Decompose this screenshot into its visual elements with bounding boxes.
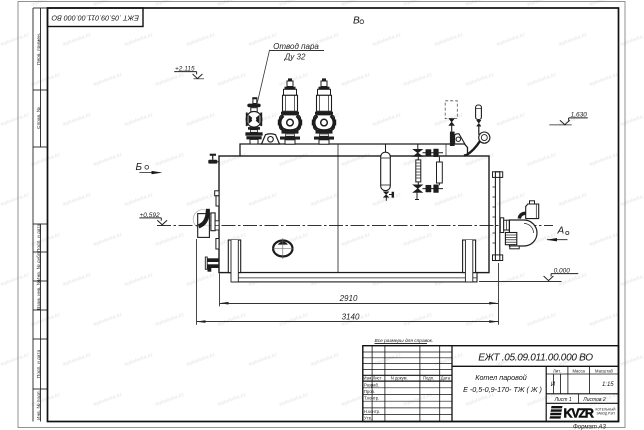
- svg-text:Инв. № дубл.: Инв. № дубл.: [36, 251, 42, 281]
- svg-text:1,630: 1,630: [571, 111, 588, 118]
- svg-text:Утв.: Утв.: [364, 416, 372, 421]
- svg-text:Т.контр.: Т.контр.: [364, 396, 379, 401]
- svg-text:Масса: Масса: [573, 368, 586, 373]
- svg-text:Масштаб: Масштаб: [595, 368, 614, 373]
- svg-text:Формат А3: Формат А3: [573, 424, 606, 430]
- svg-text:Инв. № подл.: Инв. № подл.: [36, 390, 42, 420]
- svg-text:Подп. и дата: Подп. и дата: [36, 350, 42, 379]
- svg-text:И: И: [551, 382, 556, 388]
- svg-text:ЕЖТ .05.09.011.00.000 ВО: ЕЖТ .05.09.011.00.000 ВО: [51, 13, 139, 22]
- svg-text:+2,115: +2,115: [175, 66, 195, 73]
- svg-text:А: А: [557, 226, 565, 237]
- svg-text:ЗАВОД РЭП: ЗАВОД РЭП: [597, 412, 616, 416]
- svg-text:Взам. инв. №: Взам. инв. №: [36, 280, 42, 310]
- svg-text:Пров.: Пров.: [364, 389, 375, 394]
- svg-text:Изм.Лист: Изм.Лист: [364, 376, 382, 381]
- svg-text:Котел паровой: Котел паровой: [475, 373, 527, 382]
- svg-text:3140: 3140: [342, 313, 360, 322]
- svg-text:Лит.: Лит.: [553, 368, 561, 373]
- svg-text:1:15: 1:15: [602, 382, 614, 388]
- svg-text:KVZR: KVZR: [564, 406, 594, 420]
- svg-text:Н.контр.: Н.контр.: [364, 409, 380, 414]
- svg-text:ЕЖТ .05.09.011.00.000 ВО: ЕЖТ .05.09.011.00.000 ВО: [478, 353, 593, 364]
- svg-text:N докум.: N докум.: [391, 376, 408, 381]
- svg-text:Дата: Дата: [441, 376, 451, 381]
- svg-text:Листов 2: Листов 2: [582, 397, 606, 403]
- svg-text:Отвод пара: Отвод пара: [273, 42, 319, 51]
- svg-text:В: В: [353, 16, 360, 27]
- svg-text:Б: Б: [136, 162, 143, 173]
- svg-text:Подп. и дата: Подп. и дата: [36, 224, 42, 253]
- svg-text:Подп.: Подп.: [423, 376, 434, 381]
- svg-text:Лист 1: Лист 1: [554, 397, 572, 403]
- svg-text:2910: 2910: [339, 294, 358, 303]
- svg-text:Ду 32: Ду 32: [284, 52, 306, 61]
- svg-text:Справ. №: Справ. №: [36, 107, 42, 129]
- svg-text:0,000: 0,000: [554, 268, 571, 275]
- svg-text:Разраб.: Разраб.: [364, 382, 379, 387]
- svg-text:Перв. примен.: Перв. примен.: [36, 33, 42, 65]
- svg-text:Е -0,5-0,9-170- ТЖ ( Ж ): Е -0,5-0,9-170- ТЖ ( Ж ): [463, 385, 542, 394]
- svg-text:+0,592: +0,592: [140, 212, 160, 219]
